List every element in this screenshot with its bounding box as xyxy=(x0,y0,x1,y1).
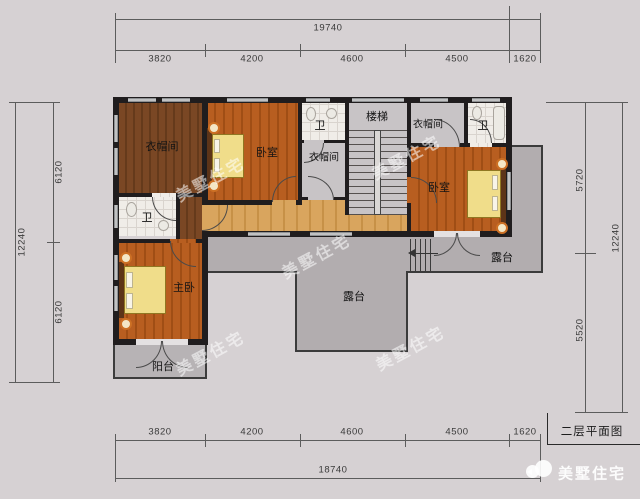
steps-arrow-head xyxy=(404,249,415,257)
dim-tick xyxy=(405,434,406,447)
dim-top-seg: 4200 xyxy=(240,54,263,65)
terrace-right-area xyxy=(512,145,543,237)
window xyxy=(114,255,118,280)
dim-right-seg: 5520 xyxy=(575,318,586,341)
room-label-master-bedroom: 主卧 xyxy=(173,279,195,295)
terrace-steps xyxy=(415,239,416,271)
dim-bottom-seg: 4500 xyxy=(445,427,468,438)
room-label-bath-left: 卫 xyxy=(142,209,153,225)
bed-headboard xyxy=(501,163,506,223)
room-label-cloakroom-mid: 衣帽间 xyxy=(309,149,339,164)
dim-bottom-seg: 1620 xyxy=(513,427,536,438)
dim-tick xyxy=(205,434,206,447)
dim-right-seg: 5720 xyxy=(575,168,586,191)
sink xyxy=(158,220,169,231)
wall-stairs-east xyxy=(407,103,411,237)
pillow xyxy=(126,272,133,288)
room-label-terrace-main: 露台 xyxy=(343,288,365,304)
window xyxy=(128,98,156,102)
dim-ext xyxy=(115,434,116,482)
logo-beak xyxy=(524,469,532,475)
terrace-outline xyxy=(407,271,543,273)
brand-name: 美墅住宅 xyxy=(558,463,626,484)
dim-tick xyxy=(9,102,60,103)
window xyxy=(472,98,500,102)
wall-wing-east-lower xyxy=(202,231,208,345)
terrace-steps xyxy=(430,239,431,271)
window xyxy=(114,115,118,142)
dim-right-total: 12240 xyxy=(611,224,622,253)
dim-bottom-seg: 4600 xyxy=(340,427,363,438)
bedside-lamp xyxy=(120,318,132,330)
window xyxy=(227,98,268,102)
dim-tick xyxy=(575,412,628,413)
sink xyxy=(326,108,337,119)
dim-tick xyxy=(205,44,206,57)
dim-top-seg: 4500 xyxy=(445,54,468,65)
window xyxy=(420,98,448,102)
dim-left-seg: 6120 xyxy=(54,160,65,183)
dim-left-total: 12240 xyxy=(17,228,28,257)
dim-line xyxy=(585,102,586,412)
dim-line xyxy=(622,102,623,412)
room-label-cloakroom-left: 衣帽间 xyxy=(146,138,179,154)
dim-tick xyxy=(405,44,406,57)
wall-cloak-bath-right xyxy=(464,103,468,147)
brand-logo-icon xyxy=(524,456,554,486)
terrace-outline xyxy=(512,145,543,147)
terrace-outline xyxy=(295,271,297,352)
room-label-terrace-right: 露台 xyxy=(491,249,513,265)
bedside-lamp xyxy=(496,222,508,234)
terrace-steps xyxy=(425,239,426,271)
terrace-main-area xyxy=(295,271,407,351)
dim-tick xyxy=(575,253,596,254)
room-label-stairs: 楼梯 xyxy=(366,108,388,124)
room-label-bath-mid: 卫 xyxy=(315,117,326,133)
dim-ext xyxy=(115,13,116,63)
dim-line xyxy=(115,50,540,51)
bedside-lamp xyxy=(120,252,132,264)
window xyxy=(507,172,511,210)
window xyxy=(162,98,190,102)
dim-tick xyxy=(300,44,301,57)
dim-bottom-total: 18740 xyxy=(319,465,348,476)
dim-left-seg: 6120 xyxy=(54,300,65,323)
dim-line xyxy=(115,19,540,20)
dim-top-seg: 3820 xyxy=(148,54,171,65)
bedside-lamp xyxy=(496,158,508,170)
dim-top-seg: 1620 xyxy=(513,54,536,65)
dim-tick xyxy=(300,434,301,447)
wall-bedroom-top-east xyxy=(298,103,302,205)
window xyxy=(248,232,290,236)
window xyxy=(306,98,330,102)
logo-circle xyxy=(535,460,552,477)
title-block-line xyxy=(547,413,548,444)
bedside-lamp xyxy=(208,122,220,134)
window xyxy=(114,148,118,175)
pillow xyxy=(214,139,220,153)
page-title: 二层平面图 xyxy=(561,423,624,439)
terrace-steps xyxy=(420,239,421,271)
room-label-bedroom-right: 卧室 xyxy=(428,179,450,195)
dim-top-seg: 4600 xyxy=(340,54,363,65)
wall-stairs-west xyxy=(345,103,349,215)
window xyxy=(114,205,118,228)
floor-plan-page: 衣帽间 卫 卧室 卫 衣帽间 楼梯 衣帽间 卫 卧室 主卧 阳台 露台 露台 1… xyxy=(0,0,640,499)
window xyxy=(114,286,118,311)
toilet xyxy=(126,202,137,217)
dim-tick xyxy=(546,102,628,103)
dim-ext xyxy=(540,13,541,63)
dim-line xyxy=(115,478,540,479)
dim-bottom-seg: 4200 xyxy=(240,427,263,438)
door-gap xyxy=(470,143,492,147)
bathtub xyxy=(493,106,505,140)
window xyxy=(352,98,404,102)
dim-tick xyxy=(9,382,60,383)
pillow xyxy=(126,293,133,309)
room-label-bedroom-top: 卧室 xyxy=(256,144,278,160)
dim-top-total: 19740 xyxy=(314,23,343,34)
terrace-outline xyxy=(541,145,543,273)
pillow xyxy=(492,175,498,190)
dim-line xyxy=(115,440,540,441)
dim-bottom-seg: 3820 xyxy=(148,427,171,438)
title-block-line xyxy=(547,444,640,445)
dim-ext xyxy=(509,6,510,63)
dim-tick xyxy=(47,242,60,243)
room-label-bath-right: 卫 xyxy=(478,117,489,133)
dim-ext xyxy=(509,434,510,447)
room-label-cloakroom-right: 衣帽间 xyxy=(413,116,443,131)
pillow xyxy=(492,196,498,211)
